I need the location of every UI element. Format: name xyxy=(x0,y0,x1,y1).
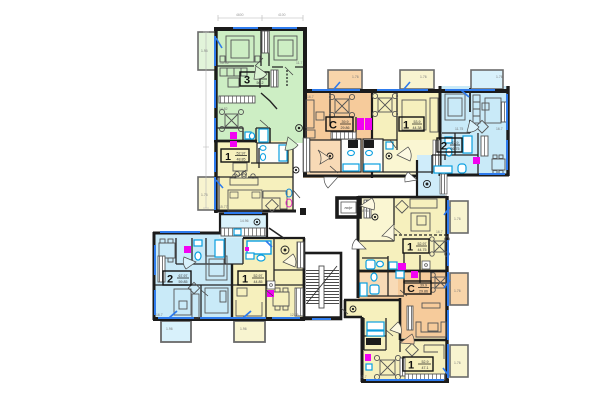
svg-text:48.85: 48.85 xyxy=(237,158,246,162)
svg-text:52.97: 52.97 xyxy=(237,152,246,156)
svg-text:16.96: 16.96 xyxy=(220,61,229,65)
svg-text:C: C xyxy=(407,283,415,295)
svg-text:1.96: 1.96 xyxy=(201,49,208,53)
svg-text:52.97: 52.97 xyxy=(418,242,427,246)
svg-text:1: 1 xyxy=(225,151,231,163)
svg-text:4100: 4100 xyxy=(278,13,286,17)
svg-text:1: 1 xyxy=(408,360,414,372)
svg-text:56.75: 56.75 xyxy=(451,147,460,151)
svg-text:1.96: 1.96 xyxy=(240,327,247,331)
svg-text:47.1: 47.1 xyxy=(422,366,429,370)
svg-text:56.2: 56.2 xyxy=(257,81,264,85)
svg-text:14.82: 14.82 xyxy=(219,107,228,111)
svg-text:1: 1 xyxy=(242,274,248,286)
svg-text:1.76: 1.76 xyxy=(496,75,503,79)
svg-text:39.9: 39.9 xyxy=(420,284,427,288)
svg-text:1.96: 1.96 xyxy=(166,327,173,331)
svg-text:C: C xyxy=(329,120,337,132)
svg-text:лифт: лифт xyxy=(344,206,353,210)
svg-text:4600: 4600 xyxy=(236,13,244,17)
svg-text:3: 3 xyxy=(244,75,250,87)
svg-text:14.96: 14.96 xyxy=(240,219,249,223)
svg-text:52.9: 52.9 xyxy=(422,360,429,364)
svg-text:16.7: 16.7 xyxy=(436,230,443,234)
svg-text:1.76: 1.76 xyxy=(454,217,461,221)
svg-text:29.86: 29.86 xyxy=(419,290,428,294)
svg-text:2: 2 xyxy=(441,141,447,153)
svg-text:16.7: 16.7 xyxy=(307,95,314,99)
svg-text:67.97: 67.97 xyxy=(179,274,188,278)
svg-text:1: 1 xyxy=(407,242,413,254)
svg-text:53.9: 53.9 xyxy=(414,120,421,124)
svg-text:15.77: 15.77 xyxy=(219,205,228,209)
svg-text:44.75: 44.75 xyxy=(418,248,427,252)
svg-text:59.85: 59.85 xyxy=(179,280,188,284)
svg-text:67.9: 67.9 xyxy=(452,141,459,145)
svg-text:44.85: 44.85 xyxy=(254,280,263,284)
svg-text:52.97: 52.97 xyxy=(254,274,263,278)
svg-text:1.76: 1.76 xyxy=(454,361,461,365)
svg-text:1.76: 1.76 xyxy=(420,75,427,79)
svg-text:8.96: 8.96 xyxy=(362,209,369,213)
svg-text:39.9: 39.9 xyxy=(342,120,349,124)
svg-text:11.75: 11.75 xyxy=(455,127,463,131)
svg-text:1: 1 xyxy=(403,120,409,132)
svg-text:29.86: 29.86 xyxy=(341,126,350,130)
svg-text:16.7: 16.7 xyxy=(496,127,503,131)
svg-text:16.7: 16.7 xyxy=(156,313,163,317)
svg-text:12.96: 12.96 xyxy=(290,313,299,317)
svg-text:2: 2 xyxy=(167,274,173,286)
svg-text:13.7: 13.7 xyxy=(360,375,367,379)
svg-text:44.38: 44.38 xyxy=(413,126,422,130)
svg-text:1.76: 1.76 xyxy=(454,289,461,293)
svg-text:1.76: 1.76 xyxy=(201,193,208,197)
svg-text:11.7: 11.7 xyxy=(296,61,302,65)
svg-text:1.76: 1.76 xyxy=(352,75,359,79)
